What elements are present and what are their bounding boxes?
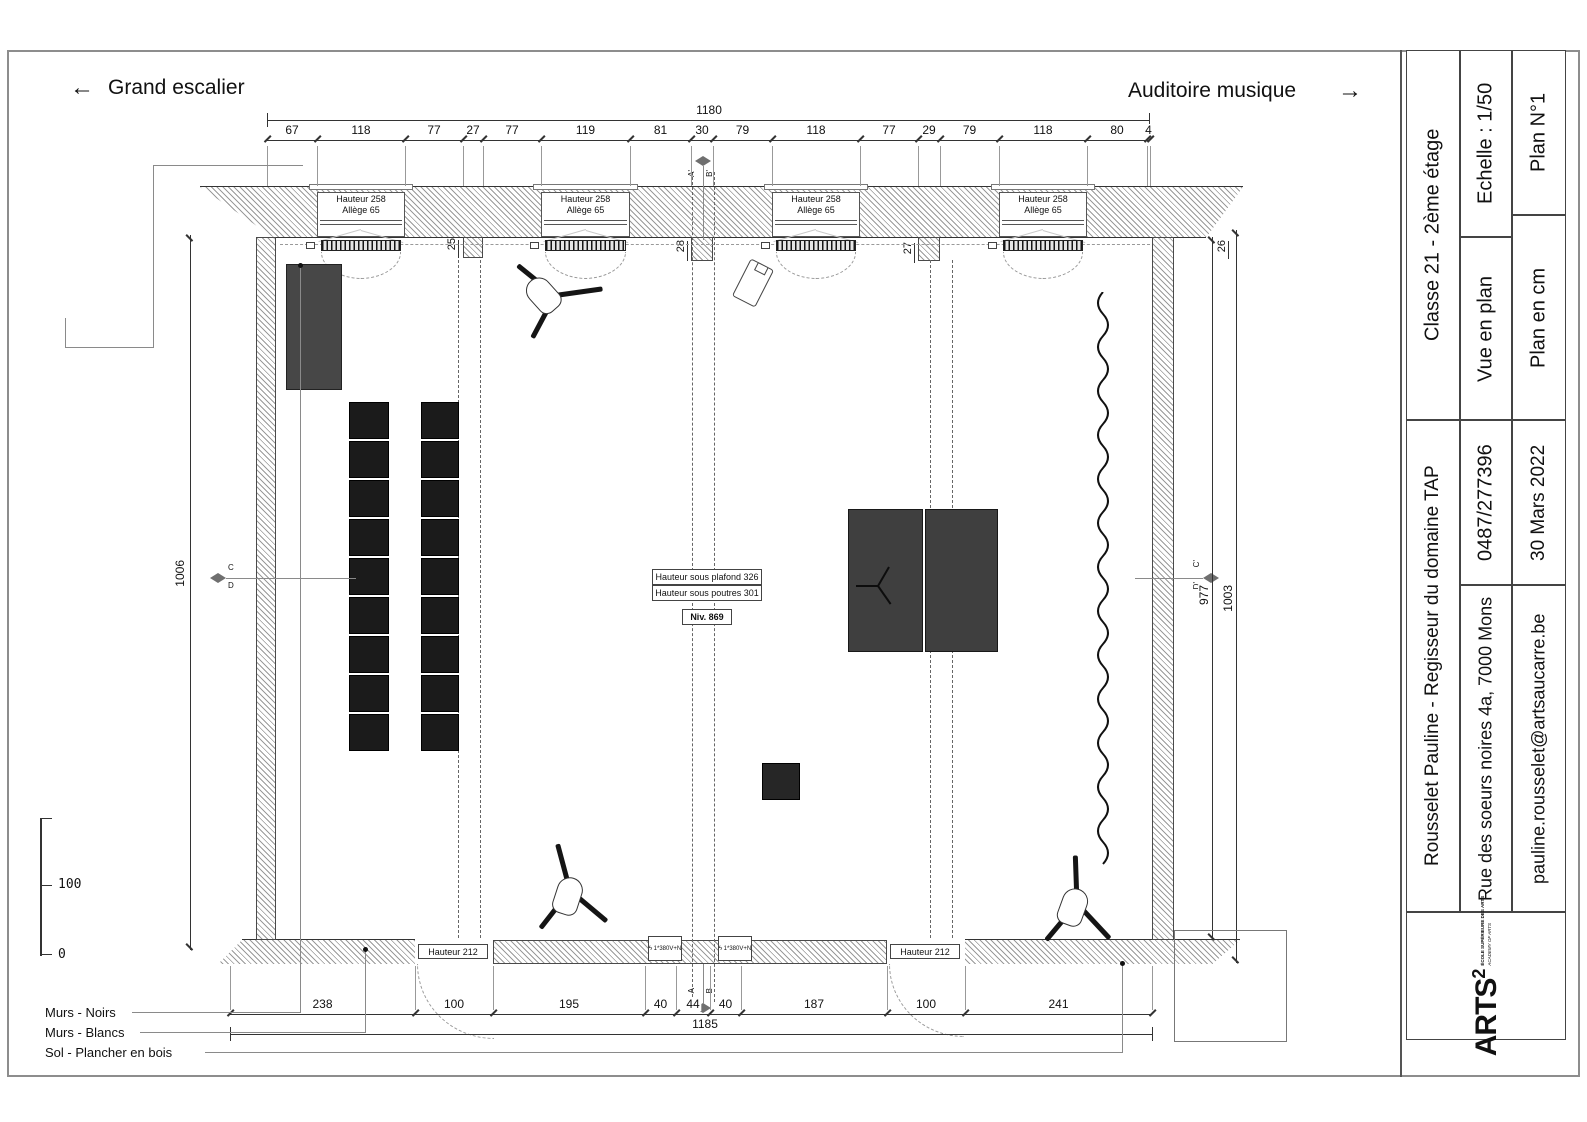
exterior-landing [1174,930,1287,1042]
radiator-valve [761,242,770,249]
window-sill [764,184,868,190]
tripod-speaker-1 [500,240,610,350]
stacked-table [421,441,459,478]
door-label-left: Hauteur 212 [418,944,488,959]
tb-address: Rue des soeurs noires 4a, 7000 Mons [1460,585,1512,912]
dim-ext [1147,146,1148,186]
stacked-table [349,441,389,478]
dim-ext [691,146,692,186]
marker-letter: D [228,582,234,590]
dim-value: 40 [717,998,734,1011]
dim-value: 100 [914,998,938,1011]
beam-note: Hauteur sous poutres 301 [652,585,762,601]
window-inner-sill [1002,220,1084,225]
stacked-table [349,597,389,634]
pillar-3 [918,237,940,261]
dim-26: 26 [1216,240,1228,252]
dim-ext [1087,146,1088,186]
window-sill [309,184,413,190]
dim-ext [965,966,966,1010]
dim-value: 187 [802,998,826,1011]
radiator-valve [306,242,315,249]
tb-units: Plan en cm [1512,215,1566,420]
stacked-table [349,714,389,751]
stacked-table [349,558,389,595]
piano-right [925,509,998,652]
window-inner-sill [320,220,402,225]
tb-view: Vue en plan [1460,237,1512,420]
scale-100: 100 [58,877,81,892]
outlet-label-2: ϟ 1*380V+N [718,936,752,961]
pillar-2 [691,237,713,261]
curtain-line [1090,292,1116,872]
dim-value: 80 [1108,124,1125,137]
dim-ext [999,146,1000,186]
legend-murs-blancs: Murs - Blancs [45,1025,124,1040]
dim-ext [493,966,494,1010]
tb-date: 30 Mars 2022 [1512,420,1566,585]
radiator [776,240,856,251]
level-note: Niv. 869 [682,609,732,625]
stair-outline [153,165,303,166]
dim-line-right-inner [1212,237,1213,940]
dim-value: 118 [349,124,372,137]
stacked-table [421,675,459,712]
stacked-table [349,636,389,673]
dim-right-outer: 1003 [1222,585,1234,612]
legend-sol: Sol - Plancher en bois [45,1045,172,1060]
dim-value: 100 [442,998,466,1011]
dim-value: 118 [804,124,827,137]
dim-value: 30 [693,124,710,137]
dim-ext [1150,146,1151,186]
dim-value: 44 [684,998,701,1011]
dim-ext [483,146,484,186]
dim-ext [860,146,861,186]
radiator-valve [988,242,997,249]
window-label-allege: Allège 65 [773,205,859,215]
left-arrow-icon: ← [70,74,94,102]
dim-ext [230,966,231,1010]
stacked-table [349,402,389,439]
dim-line-left [190,235,191,950]
window: Hauteur 258 Allège 65 [772,182,860,282]
dim-ext [940,146,941,186]
marker-letter: C' [1193,560,1201,567]
stacked-table [421,402,459,439]
window-sill [533,184,638,190]
window-swing-left [1003,252,1044,279]
wall-left [256,237,276,940]
dim-line-bottom-total [230,1034,1152,1035]
stacked-table [421,636,459,673]
dim-value: 195 [557,998,581,1011]
right-arrow-icon: → [1338,77,1362,105]
stacked-table [421,597,459,634]
arts2-logo: ARTS2 ÉCOLE SUPÉRIEURE DES ARTS ACADEMY … [1454,916,1518,1036]
dim-28: 28 [675,240,687,252]
dim-value: 79 [961,124,978,137]
stacked-table [421,480,459,517]
tb-project: Rousselet Pauline - Regisseur du domaine… [1406,420,1460,912]
plan-sheet: ← Grand escalier Auditoire musique → 25 … [0,0,1587,1122]
window-label-allege: Allège 65 [542,205,629,215]
stacked-table [349,675,389,712]
dim-ext [741,966,742,1010]
dim-value: 29 [920,124,937,137]
dim-line-right-outer [1236,230,1237,963]
window-swing-right [1042,252,1083,279]
dim-line-bottom-chain [230,1014,1152,1015]
window-label-height: Hauteur 258 [542,194,629,204]
door-label-right: Hauteur 212 [890,944,960,959]
dim-ext [713,146,714,186]
stacked-table [421,519,459,556]
dim-right-inner: 977 [1198,585,1210,605]
tb-email: pauline.rousselet@artsaucarre.be [1512,585,1566,912]
dim-ext [630,146,631,186]
dim-value: 119 [574,124,597,137]
dim-ext [317,146,318,186]
tripod-speaker-2 [515,835,625,945]
dim-ext [645,966,646,1010]
beam-line [480,260,481,938]
radiator [1003,240,1083,251]
scale-0: 0 [58,947,66,962]
radiator [321,240,401,251]
pillar-1 [463,237,483,258]
tb-room: Classe 21 - 2ème étage [1406,50,1460,420]
dim-value: 40 [652,998,669,1011]
dim-line-top-total [267,120,1150,121]
dim-ext [405,146,406,186]
dim-ext [463,146,464,186]
dim-value: 77 [880,124,897,137]
window-label-height: Hauteur 258 [318,194,404,204]
window: Hauteur 258 Allège 65 [999,182,1087,282]
window-swing-left [776,252,817,279]
dim-ext [772,146,773,186]
dim-ext [918,146,919,186]
dim-ext [267,146,268,186]
dim-value: 79 [734,124,751,137]
cabinet [286,264,342,390]
dim-bottom-total: 1185 [690,1018,720,1031]
wall-bottom-left [218,940,415,964]
window-label-allege: Allège 65 [1000,205,1086,215]
legend-murs-noirs: Murs - Noirs [45,1005,116,1020]
dim-ext [676,966,677,1010]
dim-top-total: 1180 [694,104,724,117]
outlet-label-1: ϟ 1*380V+N [648,936,682,961]
dim-ext [415,966,416,1010]
window-swing-right [815,252,856,279]
dim-value: 77 [503,124,520,137]
stacked-table [421,714,459,751]
marker-letter: A' [688,170,696,177]
tb-plan-number: Plan N°1 [1512,50,1566,215]
dim-value: 77 [425,124,442,137]
window-label-height: Hauteur 258 [1000,194,1086,204]
marker-letter: A [688,988,696,993]
marker-letter: C [228,564,234,572]
window-inner-sill [775,220,857,225]
tb-phone: 0487/277396 [1460,420,1512,585]
window-sill [991,184,1095,190]
grand-escalier-label: Grand escalier [108,76,245,100]
dim-ext [541,146,542,186]
dim-value: 118 [1031,124,1054,137]
dim-ext [1152,966,1153,1010]
piano-left [848,509,923,652]
dim-value: 241 [1046,998,1070,1011]
dim-value: 81 [652,124,669,137]
title-block-edge [1400,50,1402,1077]
stacked-table [421,558,459,595]
tb-scale: Echelle : 1/50 [1460,50,1512,237]
scale-bar [40,818,42,956]
stacked-table [349,519,389,556]
window-label-allege: Allège 65 [318,205,404,215]
ceiling-note: Hauteur sous plafond 326 [652,569,762,585]
dim-value: 238 [310,998,334,1011]
stacked-table [349,480,389,517]
auditoire-musique-label: Auditoire musique [1128,79,1296,103]
window-inner-sill [544,220,627,225]
small-box [762,763,800,800]
dim-left-height: 1006 [174,560,186,587]
dim-ext [887,966,888,1010]
wall-right [1152,237,1174,940]
window-label-height: Hauteur 258 [773,194,859,204]
dim-value: 67 [283,124,300,137]
dim-ext [710,966,711,1010]
window-swing-right [360,252,401,279]
